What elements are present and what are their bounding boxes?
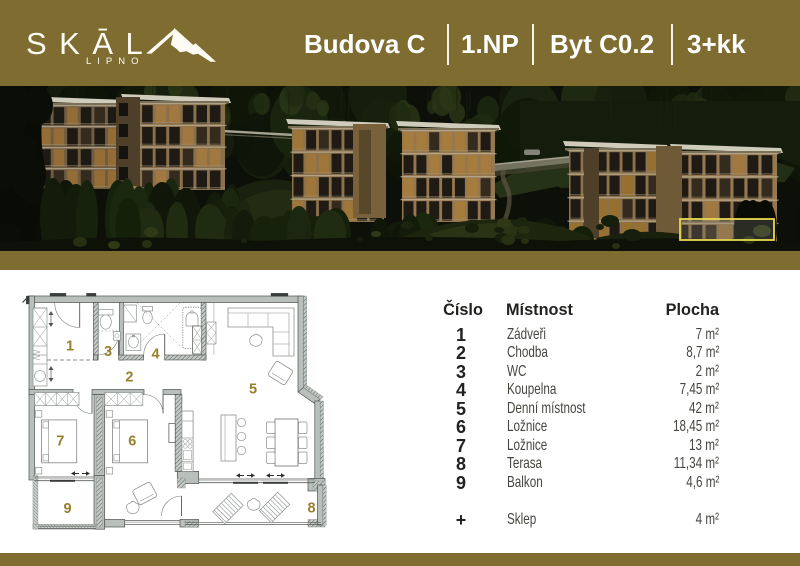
svg-text:4: 4 <box>152 347 160 363</box>
svg-text:2: 2 <box>125 370 133 386</box>
svg-text:LIPNO: LIPNO <box>86 56 145 67</box>
svg-text:9: 9 <box>63 501 71 517</box>
svg-text:7: 7 <box>56 434 64 450</box>
svg-text:6: 6 <box>128 434 136 450</box>
svg-text:8: 8 <box>308 500 316 516</box>
svg-text:3: 3 <box>104 344 112 360</box>
svg-text:5: 5 <box>249 382 257 398</box>
svg-text:1: 1 <box>66 339 74 355</box>
